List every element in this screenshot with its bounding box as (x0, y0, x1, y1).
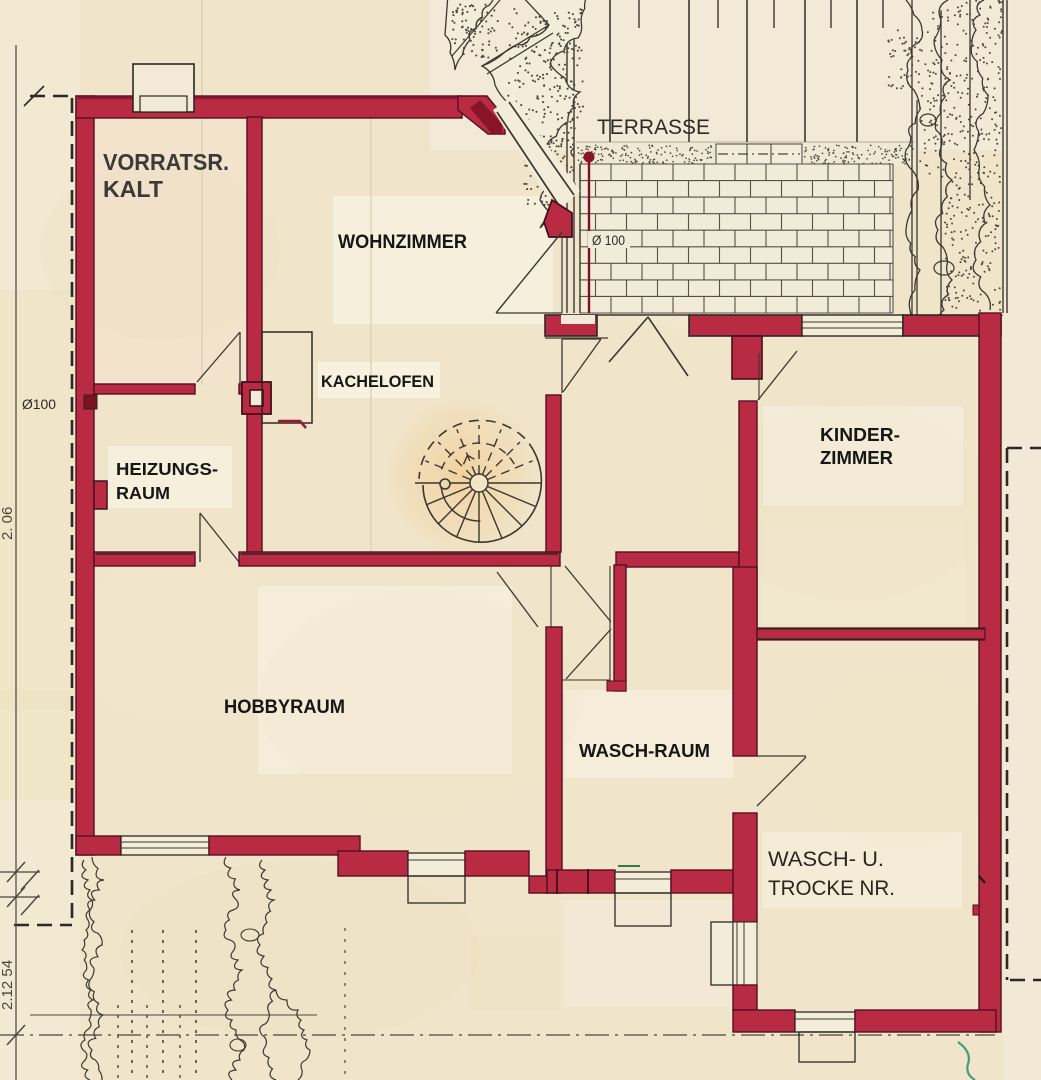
svg-text:HEIZUNGS-: HEIZUNGS- (116, 459, 218, 479)
svg-text:VORRATSR.: VORRATSR. (103, 149, 229, 175)
svg-text:Ø 100: Ø 100 (592, 233, 625, 248)
svg-text:ZIMMER: ZIMMER (820, 448, 893, 468)
svg-text:KALT: KALT (103, 176, 164, 202)
svg-text:WASCH-RAUM: WASCH-RAUM (579, 741, 710, 761)
svg-text:KACHELOFEN: KACHELOFEN (321, 373, 434, 391)
svg-text:Ø100: Ø100 (22, 397, 56, 412)
svg-text:KINDER-: KINDER- (820, 425, 900, 445)
svg-text:RAUM: RAUM (116, 483, 170, 503)
svg-text:2.12 54: 2.12 54 (0, 960, 16, 1010)
svg-text:WASCH- U.: WASCH- U. (768, 847, 884, 871)
svg-text:WOHNZIMMER: WOHNZIMMER (338, 231, 467, 253)
svg-text:2. 06: 2. 06 (0, 507, 16, 540)
svg-text:HOBBYRAUM: HOBBYRAUM (224, 697, 345, 718)
svg-text:TERRASSE: TERRASSE (597, 116, 710, 139)
svg-text:TROCKE NR.: TROCKE NR. (768, 876, 895, 900)
